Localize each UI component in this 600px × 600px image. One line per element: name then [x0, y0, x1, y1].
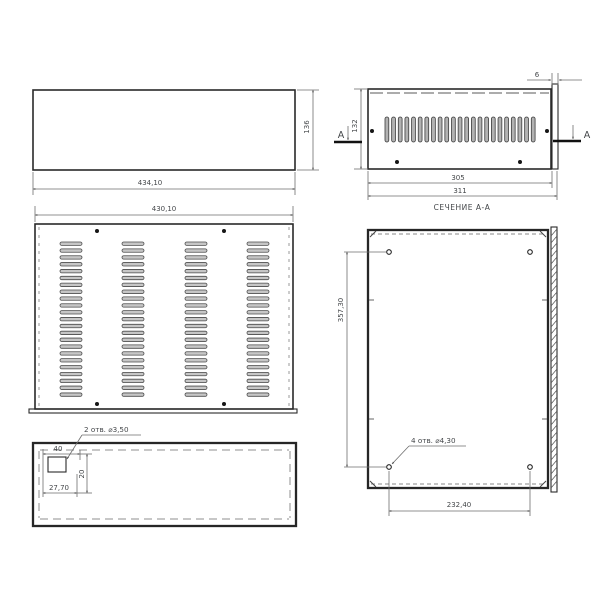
- section-height-label: 132: [351, 119, 359, 132]
- side-width-label: 434,10: [138, 179, 163, 187]
- front-offset-label: 27,70: [49, 484, 69, 492]
- panel-height-label: 357,30: [337, 298, 345, 323]
- top-hole: [222, 229, 226, 233]
- front-height-dimension: 20: [78, 454, 87, 493]
- section-marker-letter: A: [584, 130, 591, 141]
- panel-hole: [387, 250, 392, 255]
- section-title: СЕЧЕНИЕ А-А: [434, 203, 491, 212]
- side-outline: [33, 90, 295, 170]
- section-inner-width-label: 305: [451, 174, 464, 182]
- section-marker-letter: A: [338, 130, 345, 141]
- section-hole: [370, 129, 374, 133]
- panel-holes-callout: 4 отв. ⌀4,30: [392, 436, 466, 464]
- panel-height-dimension: 357,30: [337, 252, 386, 467]
- top-hole: [95, 229, 99, 233]
- front-outline: [33, 443, 296, 526]
- panel-width-label: 232,40: [447, 501, 472, 509]
- panel-corner-mark: [370, 231, 376, 237]
- section-flange-dimension: 6: [527, 71, 582, 85]
- front-height-label: 20: [78, 470, 86, 479]
- view-panel: 357,30 232,40 4 отв. ⌀4,30: [337, 227, 557, 516]
- front-holes-note: 2 отв. ⌀3,50: [84, 425, 129, 434]
- panel-hole: [528, 465, 533, 470]
- view-side: 136 434,10: [33, 90, 319, 195]
- side-width-dimension: 434,10: [33, 172, 295, 195]
- section-vent-slots: [385, 117, 535, 142]
- section-height-dimension: 132: [351, 89, 368, 169]
- section-flange: [552, 84, 558, 169]
- technical-drawing: 136 434,10 6 132: [0, 0, 600, 600]
- drawing-sheet: 136 434,10 6 132: [0, 0, 600, 600]
- panel-width-dimension: 232,40: [389, 471, 530, 516]
- side-height-label: 136: [303, 120, 311, 134]
- panel-corner-mark: [370, 481, 376, 487]
- top-hole: [222, 402, 226, 406]
- section-outer-width-label: 311: [453, 187, 466, 195]
- section-hole: [545, 129, 549, 133]
- panel-hole: [387, 465, 392, 470]
- section-flange-label: 6: [535, 71, 540, 79]
- panel-outline: [368, 230, 548, 488]
- top-vent-slats: [60, 242, 269, 396]
- section-cut-marker-right: A: [553, 125, 591, 141]
- panel-hole: [528, 250, 533, 255]
- front-cutout: [48, 457, 66, 472]
- flange-hatch: [551, 229, 557, 488]
- top-width-label: 430,10: [152, 205, 177, 213]
- view-top: 430,10: [29, 205, 297, 413]
- front-width-label: 40: [54, 445, 63, 453]
- section-hole: [518, 160, 522, 164]
- side-height-dimension: 136: [297, 90, 319, 170]
- panel-holes-note: 4 отв. ⌀4,30: [411, 436, 456, 445]
- view-front: 40 27,70 20 2 отв. ⌀3,50: [33, 425, 296, 526]
- top-width-dimension: 430,10: [35, 205, 293, 222]
- view-section: 6 132 A A 305 311 СЕЧЕН: [334, 71, 591, 212]
- section-hole: [395, 160, 399, 164]
- top-hole: [95, 402, 99, 406]
